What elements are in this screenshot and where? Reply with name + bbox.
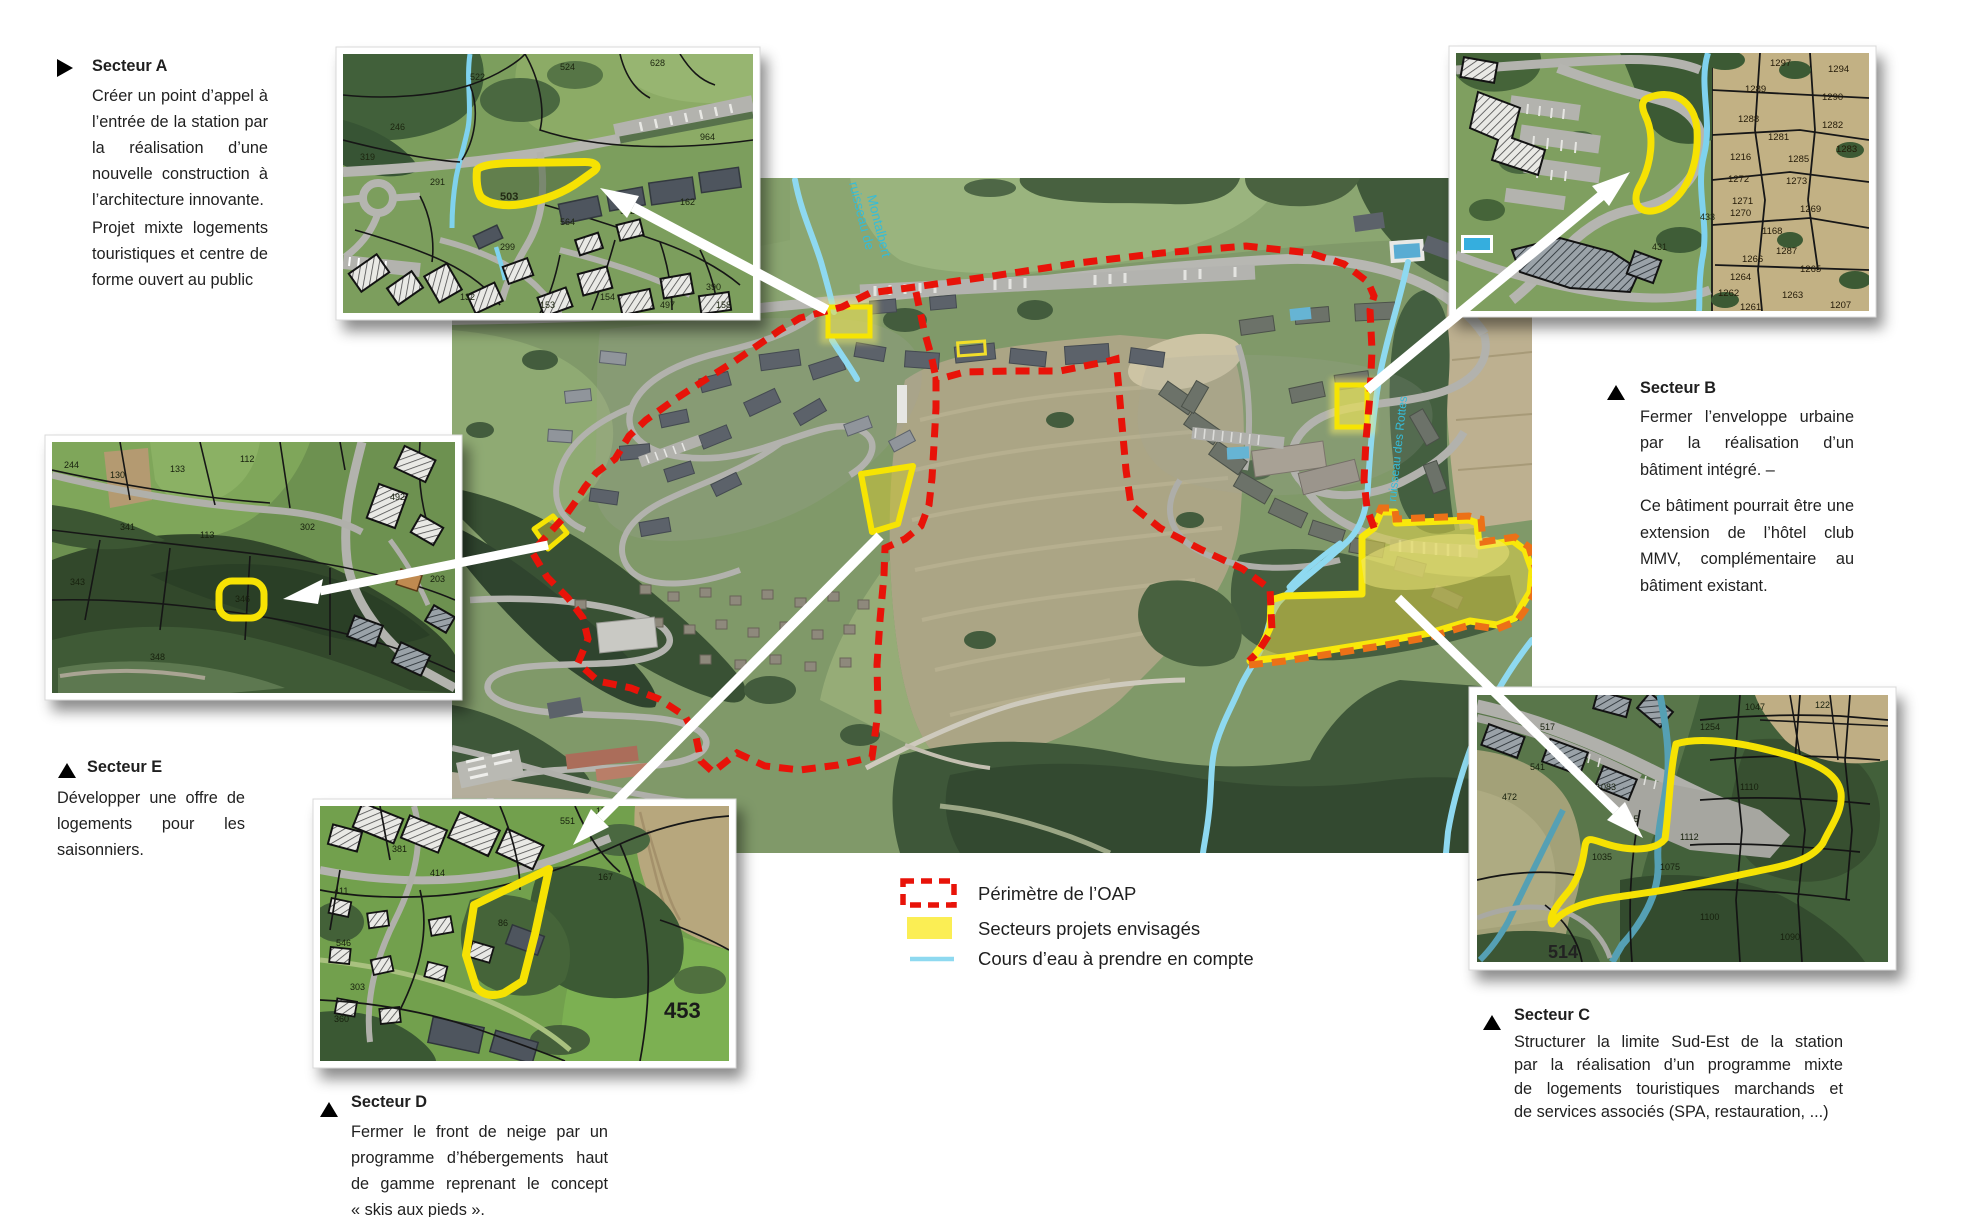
svg-text:1090: 1090 (1780, 932, 1800, 942)
svg-text:1264: 1264 (1730, 272, 1751, 283)
svg-text:1273: 1273 (1786, 176, 1807, 187)
svg-text:130: 130 (110, 470, 125, 480)
svg-text:1266: 1266 (1742, 254, 1763, 265)
svg-text:154: 154 (600, 292, 615, 302)
svg-text:492: 492 (390, 492, 405, 502)
svg-text:1269: 1269 (1800, 204, 1821, 215)
svg-text:381: 381 (392, 844, 407, 854)
svg-text:1297: 1297 (1770, 58, 1791, 69)
svg-text:303: 303 (350, 982, 365, 992)
svg-text:1282: 1282 (1822, 120, 1843, 131)
svg-text:964: 964 (700, 132, 715, 142)
svg-text:564: 564 (560, 217, 575, 227)
svg-text:1283: 1283 (1836, 144, 1857, 155)
svg-text:133: 133 (170, 464, 185, 474)
svg-text:472: 472 (1502, 792, 1517, 802)
svg-text:302: 302 (300, 522, 315, 532)
svg-text:541: 541 (1530, 762, 1545, 772)
svg-text:431: 431 (1652, 242, 1667, 252)
svg-text:1290: 1290 (1822, 92, 1843, 103)
svg-text:158: 158 (716, 300, 731, 310)
svg-text:546: 546 (336, 938, 351, 948)
svg-text:1281: 1281 (1768, 132, 1789, 143)
svg-text:246: 246 (390, 122, 405, 132)
svg-text:551: 551 (560, 816, 575, 826)
svg-text:203: 203 (430, 574, 445, 584)
svg-text:1207: 1207 (1830, 300, 1851, 311)
svg-text:244: 244 (64, 460, 79, 470)
svg-text:299: 299 (500, 242, 515, 252)
svg-text:1272: 1272 (1728, 174, 1749, 185)
svg-text:1262: 1262 (1718, 288, 1739, 299)
svg-text:162: 162 (680, 197, 695, 207)
svg-text:1110: 1110 (1740, 782, 1759, 792)
svg-text:167: 167 (598, 872, 613, 882)
svg-text:1289: 1289 (1745, 84, 1766, 95)
svg-text:1112: 1112 (1680, 832, 1699, 842)
svg-text:414: 414 (430, 868, 445, 878)
svg-text:522: 522 (470, 72, 485, 82)
svg-text:1168: 1168 (1762, 226, 1782, 237)
svg-text:1265: 1265 (1800, 264, 1821, 275)
svg-text:132: 132 (460, 292, 475, 302)
svg-text:524: 524 (560, 62, 575, 72)
svg-text:346: 346 (235, 594, 250, 604)
svg-text:343: 343 (70, 577, 85, 587)
svg-text:122: 122 (1815, 700, 1830, 710)
svg-text:628: 628 (650, 58, 665, 68)
svg-text:291: 291 (430, 177, 445, 187)
svg-text:1285: 1285 (1788, 154, 1809, 165)
svg-text:1270: 1270 (1730, 208, 1751, 219)
svg-text:503: 503 (500, 191, 518, 203)
svg-text:1287: 1287 (1776, 246, 1797, 257)
svg-text:453: 453 (664, 998, 701, 1023)
svg-text:319: 319 (360, 152, 375, 162)
svg-text:1271: 1271 (1732, 196, 1753, 207)
svg-text:112: 112 (240, 454, 254, 464)
svg-text:1216: 1216 (1730, 152, 1751, 163)
svg-text:341: 341 (120, 522, 135, 532)
svg-text:1047: 1047 (1745, 702, 1765, 712)
svg-text:348: 348 (150, 652, 165, 662)
svg-text:86: 86 (498, 918, 508, 928)
svg-text:360: 360 (334, 1014, 349, 1024)
svg-text:514: 514 (1548, 942, 1578, 962)
svg-text:1254: 1254 (1700, 722, 1720, 732)
svg-text:1263: 1263 (1782, 290, 1803, 301)
svg-text:411: 411 (334, 886, 348, 896)
svg-text:433: 433 (1700, 212, 1715, 222)
svg-text:113: 113 (200, 530, 214, 540)
svg-text:1288: 1288 (1738, 114, 1759, 125)
svg-text:1075: 1075 (1660, 862, 1680, 872)
svg-text:497: 497 (660, 300, 675, 310)
svg-text:390: 390 (706, 282, 721, 292)
svg-text:517: 517 (1540, 722, 1555, 732)
svg-text:153: 153 (540, 300, 555, 310)
svg-text:1100: 1100 (1700, 912, 1719, 922)
svg-text:1035: 1035 (1592, 852, 1612, 862)
svg-text:1294: 1294 (1828, 64, 1849, 75)
